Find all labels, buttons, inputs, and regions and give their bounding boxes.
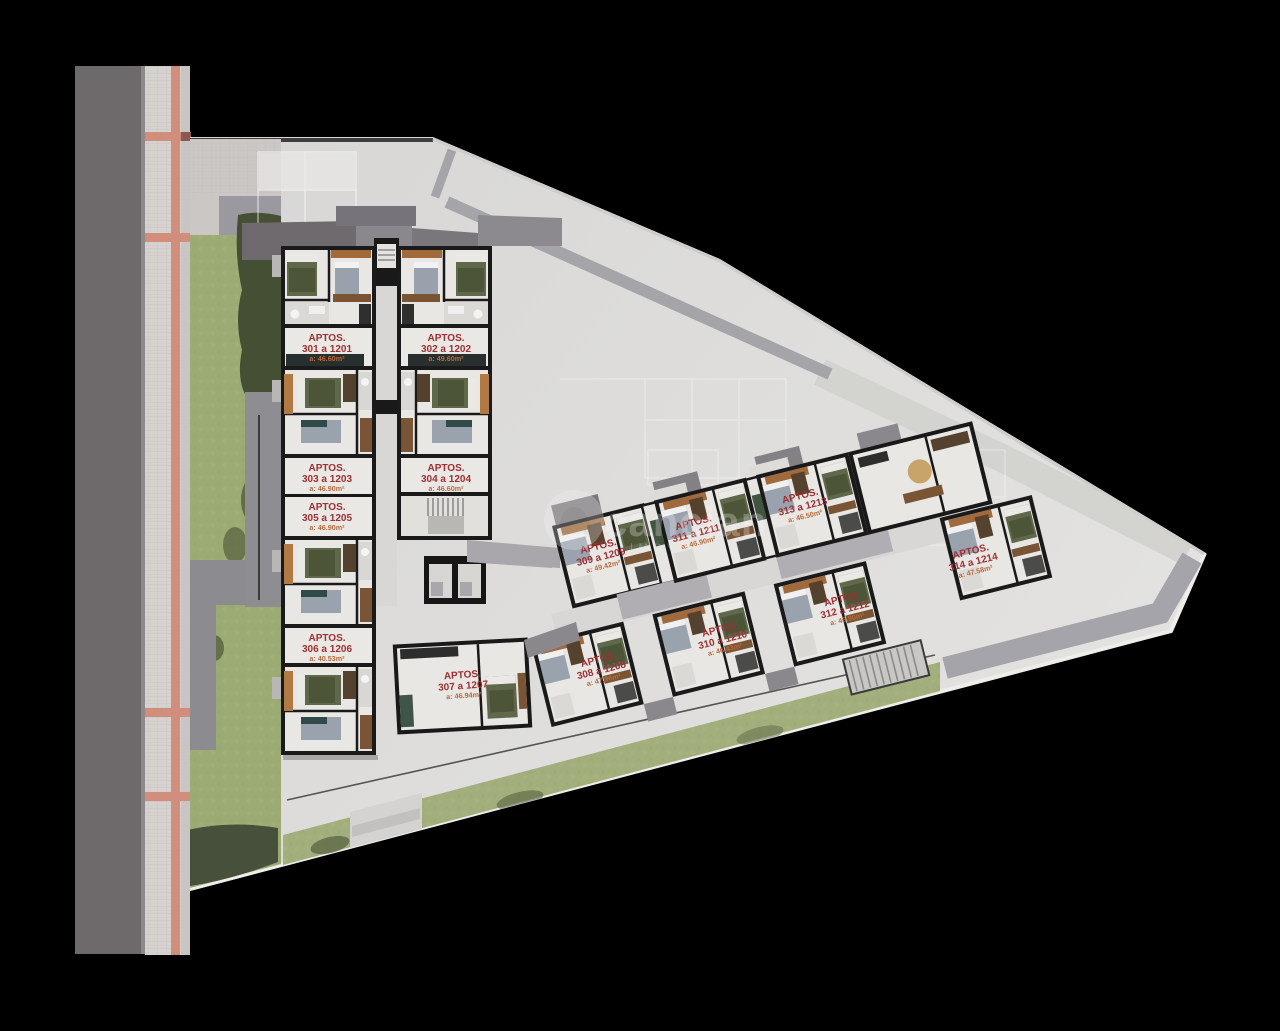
svg-text:APTOS.: APTOS. [308, 463, 345, 474]
svg-text:a: 46.60m²: a: 46.60m² [309, 354, 345, 363]
svg-text:a: 46.90m²: a: 46.90m² [309, 484, 345, 493]
svg-text:a: 49.60m²: a: 49.60m² [428, 354, 464, 363]
svg-text:IMÓVEIS: IMÓVEIS [630, 541, 714, 554]
svg-text:a: 40.53m²: a: 40.53m² [309, 654, 345, 663]
svg-text:APTOS.: APTOS. [427, 333, 464, 344]
svg-text:APTOS.: APTOS. [308, 502, 345, 513]
svg-text:APTOS.: APTOS. [308, 633, 345, 644]
svg-text:APTOS.: APTOS. [308, 333, 345, 344]
svg-text:a: 46.60m²: a: 46.60m² [428, 484, 464, 493]
svg-text:cancian: cancian [604, 498, 767, 545]
svg-text:APTOS.: APTOS. [427, 463, 464, 474]
svg-text:a: 46.90m²: a: 46.90m² [309, 523, 345, 532]
